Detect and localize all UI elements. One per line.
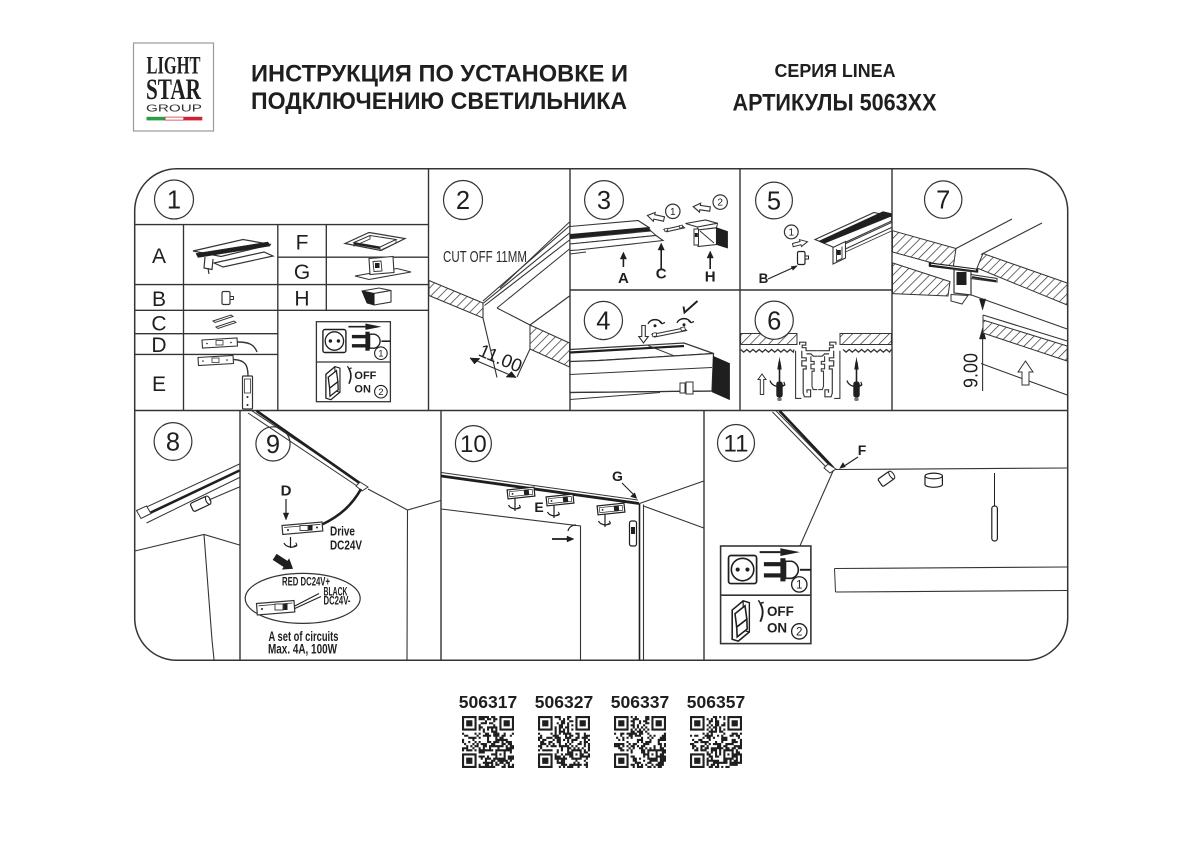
svg-text:СЕРИЯ LINEA: СЕРИЯ LINEA (775, 61, 896, 81)
svg-text:G: G (612, 468, 623, 484)
svg-text:E: E (152, 373, 166, 396)
svg-text:Max. 4A, 100W: Max. 4A, 100W (268, 642, 337, 657)
svg-text:B: B (759, 271, 769, 286)
svg-text:6: 6 (767, 307, 781, 335)
svg-text:ON: ON (354, 384, 371, 396)
svg-text:ON: ON (767, 621, 787, 636)
svg-text:E: E (534, 499, 543, 515)
svg-text:A: A (618, 270, 629, 287)
svg-text:506337: 506337 (611, 692, 669, 712)
svg-text:АРТИКУЛЫ 5063ХХ: АРТИКУЛЫ 5063ХХ (733, 90, 937, 117)
svg-text:5: 5 (767, 188, 781, 216)
svg-text:ИНСТРУКЦИЯ ПО УСТАНОВКЕ И: ИНСТРУКЦИЯ ПО УСТАНОВКЕ И (251, 61, 628, 88)
svg-text:ПОДКЛЮЧЕНИЮ СВЕТИЛЬНИКА: ПОДКЛЮЧЕНИЮ СВЕТИЛЬНИКА (251, 88, 627, 115)
svg-text:1: 1 (167, 187, 181, 215)
svg-text:2: 2 (378, 387, 383, 398)
svg-text:STAR: STAR (146, 73, 201, 106)
svg-text:10: 10 (460, 431, 487, 458)
svg-text:C: C (656, 266, 667, 283)
svg-text:9: 9 (266, 431, 280, 459)
svg-text:GROUP: GROUP (146, 103, 202, 115)
svg-text:7: 7 (936, 187, 950, 215)
svg-text:506357: 506357 (687, 692, 745, 712)
svg-text:8: 8 (166, 429, 180, 457)
svg-text:4: 4 (596, 308, 610, 336)
svg-text:506317: 506317 (459, 692, 517, 712)
svg-text:D: D (151, 334, 166, 357)
svg-text:Drive: Drive (330, 524, 355, 539)
svg-text:OFF: OFF (767, 604, 794, 619)
svg-text:A: A (152, 245, 166, 268)
svg-text:F: F (858, 442, 867, 458)
svg-text:1: 1 (796, 580, 802, 592)
svg-text:9.00: 9.00 (961, 353, 983, 388)
svg-text:1: 1 (378, 349, 383, 360)
svg-text:F: F (296, 232, 309, 255)
svg-text:B: B (152, 288, 166, 311)
svg-text:C: C (151, 313, 166, 336)
svg-text:1: 1 (789, 228, 795, 239)
svg-text:D: D (281, 483, 292, 500)
svg-text:11: 11 (724, 431, 749, 458)
svg-text:1: 1 (670, 207, 676, 218)
svg-text:DC24V: DC24V (330, 538, 362, 553)
svg-text:2: 2 (717, 198, 723, 209)
svg-text:H: H (294, 288, 309, 311)
svg-text:DC24V-: DC24V- (324, 596, 351, 608)
svg-text:506327: 506327 (535, 692, 593, 712)
svg-text:2: 2 (456, 187, 470, 215)
svg-text:CUT OFF 11MM: CUT OFF 11MM (443, 249, 527, 266)
svg-text:H: H (705, 269, 716, 286)
svg-text:OFF: OFF (354, 370, 376, 382)
svg-text:G: G (294, 261, 310, 284)
svg-text:3: 3 (597, 187, 611, 215)
svg-text:2: 2 (796, 627, 802, 639)
